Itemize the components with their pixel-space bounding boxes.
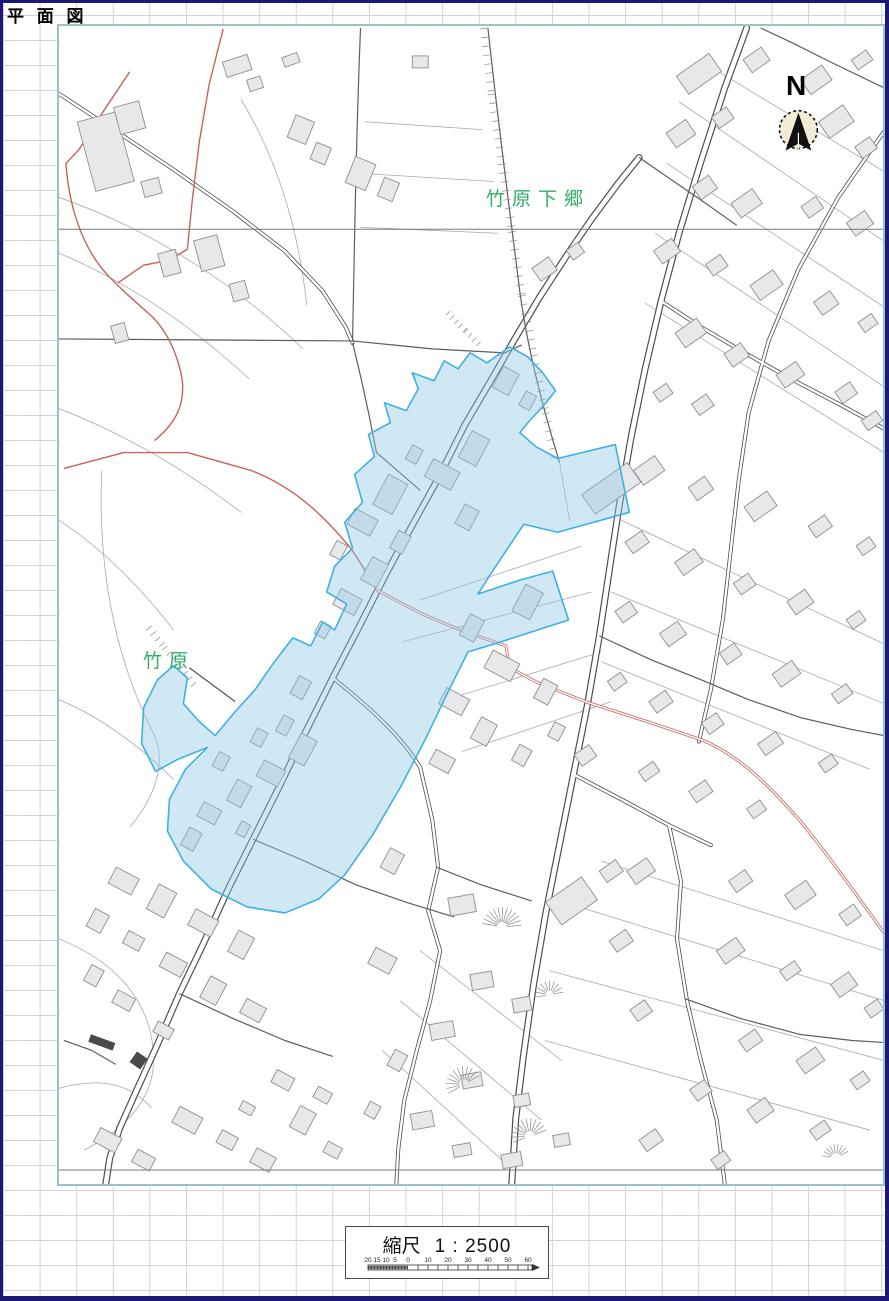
building-footprint — [364, 1101, 381, 1119]
building-footprint — [553, 1133, 571, 1148]
building-footprint — [659, 621, 686, 647]
building-footprint — [711, 1151, 731, 1170]
building-footprint — [689, 780, 713, 803]
building-footprint — [831, 684, 853, 704]
building-footprint — [470, 971, 494, 991]
building-footprint — [228, 930, 255, 960]
svg-text:5: 5 — [393, 1257, 397, 1264]
building-footprint — [247, 76, 264, 92]
building-footprint — [271, 1070, 295, 1092]
map-svg — [59, 26, 883, 1184]
building-footprint — [216, 1130, 238, 1151]
building-footprint — [368, 947, 397, 974]
building-footprint — [222, 54, 252, 77]
building-footprint — [625, 531, 649, 554]
building-footprint — [412, 56, 428, 68]
building-footprint — [747, 800, 767, 819]
building-footprint — [513, 1093, 531, 1108]
building-footprint — [818, 754, 838, 773]
building-footprint — [851, 50, 873, 70]
building-footprint — [747, 1097, 774, 1123]
building-footprint — [856, 537, 876, 556]
svg-text:50: 50 — [504, 1257, 512, 1264]
building-footprint — [855, 137, 878, 159]
building-footprint — [410, 1110, 434, 1130]
building-footprint — [122, 930, 144, 951]
building-footprint — [380, 848, 404, 875]
building-footprint — [705, 254, 728, 276]
building-footprint — [132, 1149, 156, 1171]
building-footprint — [738, 1029, 762, 1052]
building-footprint — [743, 47, 770, 73]
building-footprint — [729, 870, 753, 893]
svg-text:10: 10 — [424, 1257, 432, 1264]
building-footprint — [858, 314, 878, 333]
building-footprint — [83, 965, 104, 987]
svg-text:0: 0 — [406, 1257, 410, 1264]
building-footprint — [310, 142, 331, 165]
building-footprint — [512, 996, 532, 1013]
building-footprint — [484, 650, 520, 682]
building-footprint — [785, 880, 816, 910]
building-footprint — [808, 515, 832, 538]
building-footprint — [615, 601, 638, 623]
building-footprint — [229, 280, 249, 301]
building-footprint — [835, 382, 858, 404]
svg-text:40: 40 — [484, 1257, 492, 1264]
building-footprint — [638, 761, 660, 781]
building-footprint — [639, 1129, 663, 1152]
building-footprint — [377, 177, 399, 201]
building-footprint — [609, 929, 633, 952]
building-footprint — [731, 189, 762, 219]
building-footprint — [289, 1105, 316, 1135]
building-footprint — [733, 573, 756, 595]
building-footprint — [744, 491, 777, 522]
building-footprint — [141, 177, 162, 197]
building-footprint — [847, 211, 874, 237]
building-footprint — [323, 1141, 343, 1159]
building-footprint — [511, 744, 532, 766]
building-footprint — [452, 1143, 472, 1158]
building-footprint — [429, 1021, 455, 1041]
scale-bar-svg: 20151050102030405060 — [346, 1253, 548, 1277]
building-footprint — [719, 643, 742, 665]
bridge-mark — [88, 1034, 115, 1050]
north-arrow-icon — [780, 111, 818, 152]
svg-text:15: 15 — [373, 1257, 381, 1264]
building-footprint — [818, 105, 854, 138]
building-footprint — [345, 156, 376, 190]
building-footprint — [111, 322, 129, 343]
building-footprint — [810, 1120, 832, 1140]
svg-text:20: 20 — [364, 1257, 372, 1264]
scale-box: 縮尺1 : 2500 20151050102030405060 — [345, 1226, 549, 1279]
map-frame: 竹原下郷 竹原 N — [57, 24, 885, 1186]
building-footprint — [758, 732, 784, 756]
building-footprint — [159, 952, 188, 977]
building-footprint — [814, 291, 839, 315]
building-footprint — [607, 672, 627, 691]
building-footprint — [796, 1047, 825, 1074]
building-footprint — [627, 858, 656, 885]
building-footprint — [780, 961, 802, 981]
building-footprint — [787, 589, 814, 615]
building-footprint — [470, 717, 497, 747]
building-footprint — [831, 972, 858, 998]
building-footprint — [239, 1101, 256, 1116]
building-footprint — [666, 119, 696, 147]
building-footprint — [688, 476, 713, 500]
map-canvas — [59, 26, 883, 1184]
highlight-area — [142, 347, 630, 913]
building-footprint — [724, 343, 749, 367]
building-footprint — [716, 937, 745, 964]
building-footprint — [846, 610, 866, 629]
building-footprint — [146, 884, 177, 918]
building-footprint — [501, 1151, 523, 1168]
building-footprint — [282, 52, 300, 67]
area-label-takehara: 竹原 — [143, 646, 195, 673]
building-footprint — [599, 860, 623, 883]
svg-text:30: 30 — [464, 1257, 472, 1264]
building-footprint — [772, 660, 801, 687]
scale-bar: 20151050102030405060 — [346, 1253, 548, 1277]
building-footprint — [675, 549, 704, 576]
building-footprint — [676, 53, 721, 94]
building-footprint — [108, 867, 139, 895]
building-footprint — [750, 270, 783, 301]
building-footprint — [287, 115, 314, 145]
building-footprint — [850, 1071, 870, 1090]
label-leader-line — [189, 668, 235, 702]
svg-text:10: 10 — [382, 1257, 390, 1264]
building-footprint — [448, 894, 477, 916]
building-footprint — [692, 394, 715, 416]
svg-text:60: 60 — [524, 1257, 532, 1264]
building-footprint — [313, 1086, 333, 1104]
building-footprint — [250, 1148, 277, 1172]
building-footprint — [630, 1000, 653, 1022]
building-footprint — [172, 1106, 203, 1134]
building-footprint — [86, 908, 109, 933]
building-footprint — [864, 999, 883, 1018]
building-footprint — [429, 749, 456, 773]
building-footprint — [801, 197, 824, 219]
north-label: N — [786, 70, 806, 102]
building-footprint — [200, 976, 227, 1006]
building-footprint — [387, 1049, 408, 1071]
area-label-takehara-shimogo: 竹原下郷 — [486, 184, 590, 211]
building-footprint — [112, 990, 136, 1012]
building-footprint — [675, 318, 706, 348]
building-footprint — [153, 1021, 174, 1040]
building-footprint — [649, 690, 673, 713]
page-title: 平 面 図 — [7, 2, 87, 27]
building-footprint — [240, 998, 267, 1022]
building-footprint — [653, 383, 673, 402]
building-footprint — [839, 904, 862, 926]
svg-text:20: 20 — [444, 1257, 452, 1264]
building-footprint — [548, 722, 566, 742]
building-footprint — [461, 1072, 483, 1089]
